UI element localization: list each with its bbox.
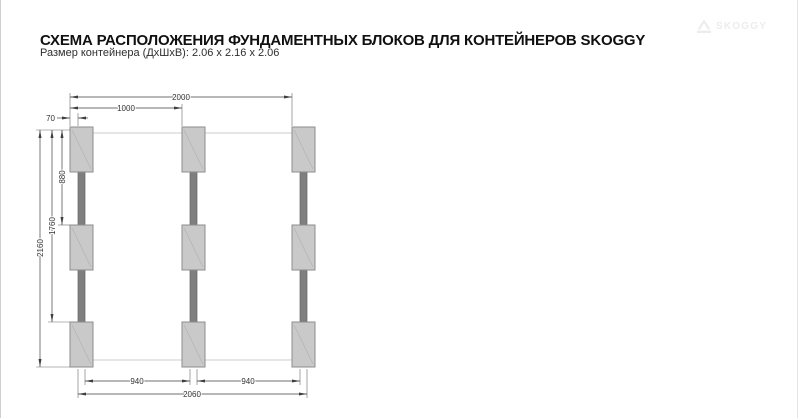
dimension-label-2000: 2000 xyxy=(172,93,190,102)
foundation-layout-diagram: 2000 1000 70 2160 1760 880 xyxy=(30,80,330,407)
dimension-label-940-left: 940 xyxy=(130,377,144,386)
dimension-bottom-total: 2060 xyxy=(78,390,307,399)
skoggy-logo-text: SKOGGY xyxy=(716,21,767,32)
page-left-border xyxy=(0,0,1,418)
dimension-label-2060: 2060 xyxy=(183,390,201,399)
dimension-bottom-gap-left: 940 xyxy=(85,377,190,386)
skoggy-triangle-icon xyxy=(697,20,711,33)
dimension-top-center-spacing: 1000 xyxy=(70,104,182,126)
dimension-top-total: 2000 xyxy=(70,93,292,126)
dimension-label-70: 70 xyxy=(46,114,55,123)
dimension-label-880: 880 xyxy=(58,170,67,184)
block-column-right xyxy=(292,127,315,367)
dimension-height-total: 2160 xyxy=(36,130,70,367)
dimension-label-1000: 1000 xyxy=(117,104,135,113)
dimension-height-to-third-row: 1760 xyxy=(48,130,70,322)
block-column-left xyxy=(70,127,93,367)
dimension-height-to-second-row: 880 xyxy=(58,130,70,225)
block-column-middle xyxy=(182,127,205,367)
container-size-subtitle: Размер контейнера (ДхШхВ): 2.06 х 2.16 х… xyxy=(40,47,279,59)
dimension-label-940-right: 940 xyxy=(241,377,255,386)
dimension-bottom-gap-right: 940 xyxy=(197,377,300,386)
page-right-border xyxy=(797,0,798,418)
dimension-label-2160: 2160 xyxy=(36,239,45,257)
foundation-diagram-svg: 2000 1000 70 2160 1760 880 xyxy=(30,80,330,402)
skoggy-logo: SKOGGY xyxy=(697,20,767,33)
dimension-block-edge-offset: 70 xyxy=(46,113,88,126)
dimension-label-1760: 1760 xyxy=(48,217,57,235)
